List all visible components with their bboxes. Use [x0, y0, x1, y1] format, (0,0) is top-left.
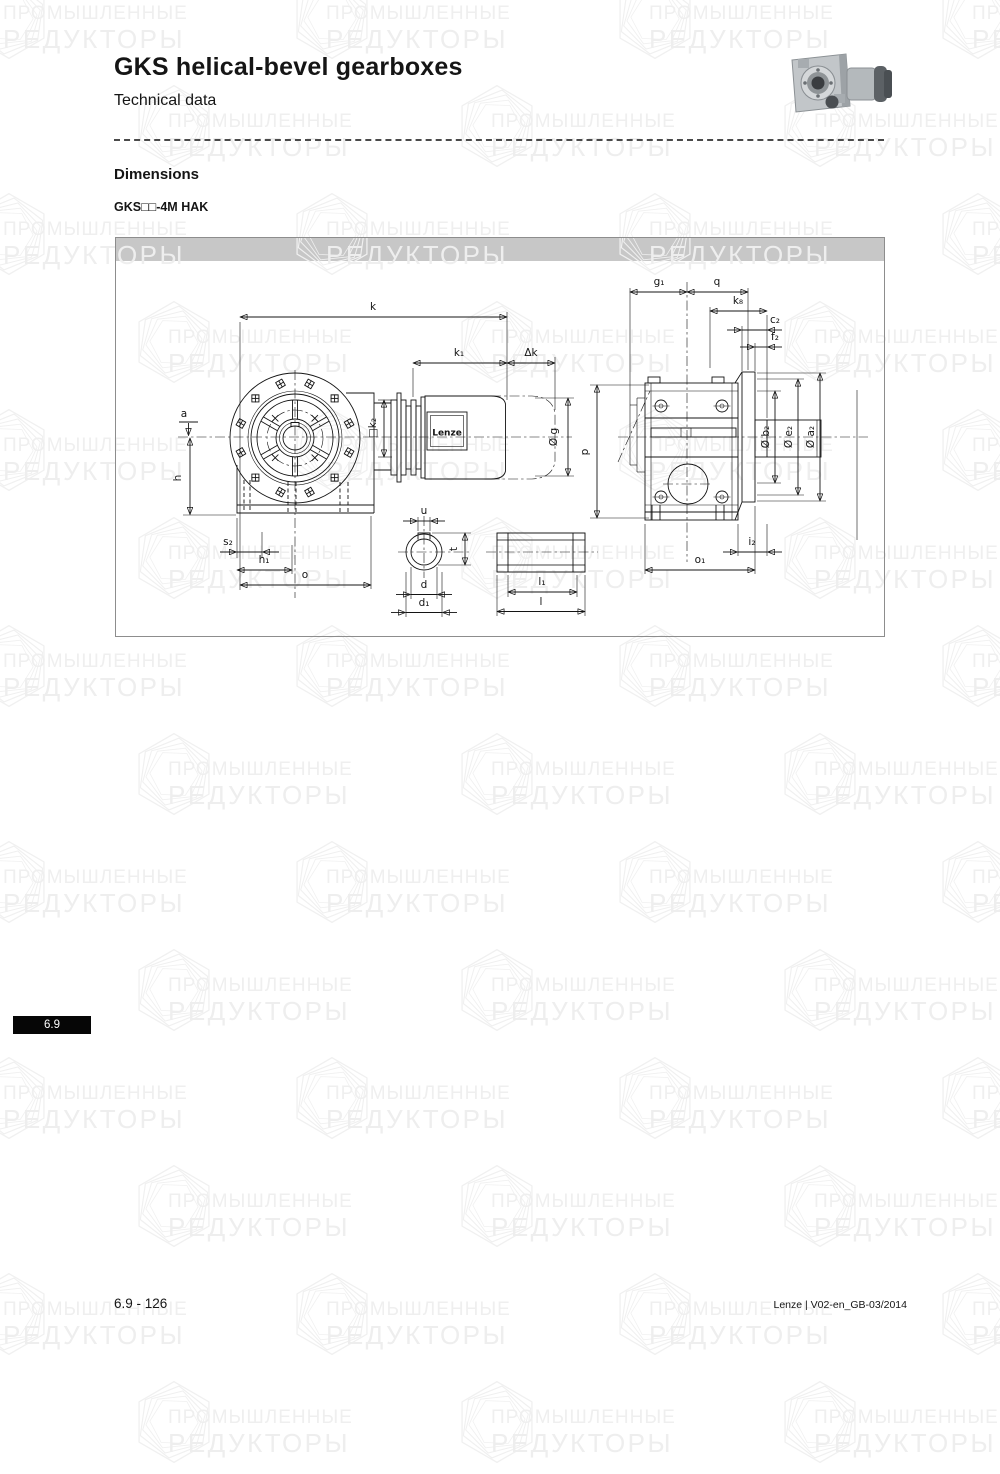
- dim-label-s2: s₂: [223, 536, 233, 548]
- watermark-line1: ПРОМЫШЛЕННЫЕ: [972, 652, 1000, 673]
- watermark-line2: РЕДУКТОРЫ: [3, 1105, 188, 1133]
- watermark: ПРОМЫШЛЕННЫЕРЕДУКТОРЫ: [0, 1266, 215, 1366]
- section-heading: Dimensions: [114, 166, 199, 183]
- watermark: ПРОМЫШЛЕННЫЕРЕДУКТОРЫ: [611, 834, 861, 934]
- watermark-line2: РЕДУКТОРЫ: [814, 997, 999, 1025]
- watermark: ПРОМЫШЛЕННЫЕРЕДУКТОРЫ: [934, 0, 1000, 70]
- watermark-line2: РЕДУКТОРЫ: [326, 673, 511, 701]
- watermark-line2: РЕДУКТОРЫ: [814, 133, 999, 161]
- watermark-line2: РЕДУКТОРЫ: [491, 1213, 676, 1241]
- watermark-line1: ПРОМЫШЛЕННЫЕ: [649, 1084, 834, 1105]
- watermark: ПРОМЫШЛЕННЫЕРЕДУКТОРЫ: [776, 1374, 1000, 1474]
- watermark-line2: РЕДУКТОРЫ: [814, 1213, 999, 1241]
- watermark: ПРОМЫШЛЕННЫЕРЕДУКТОРЫ: [453, 1158, 703, 1258]
- footer-page-number: 6.9 - 126: [114, 1296, 167, 1311]
- watermark-line2: РЕДУКТОРЫ: [3, 673, 188, 701]
- watermark-line2: РЕДУКТОРЫ: [3, 1321, 188, 1349]
- catalog-page: { "header": { "title": "GKS helical-beve…: [0, 0, 1000, 1395]
- watermark: ПРОМЫШЛЕННЫЕРЕДУКТОРЫ: [130, 726, 380, 826]
- watermark-line2: РЕДУКТОРЫ: [649, 1321, 834, 1349]
- watermark-line2: РЕДУКТОРЫ: [972, 673, 1000, 701]
- rear-bolts: [653, 400, 731, 503]
- watermark-line1: ПРОМЫШЛЕННЫЕ: [491, 1192, 676, 1213]
- watermark: ПРОМЫШЛЕННЫЕРЕДУКТОРЫ: [130, 942, 380, 1042]
- watermark: ПРОМЫШЛЕННЫЕРЕДУКТОРЫ: [453, 78, 703, 178]
- watermark-line2: РЕДУКТОРЫ: [491, 997, 676, 1025]
- dashed-divider: [114, 139, 884, 141]
- watermark-line1: ПРОМЫШЛЕННЫЕ: [972, 1084, 1000, 1105]
- watermark: ПРОМЫШЛЕННЫЕРЕДУКТОРЫ: [934, 402, 1000, 502]
- technical-drawing: Lenze: [115, 237, 885, 637]
- watermark: ПРОМЫШЛЕННЫЕРЕДУКТОРЫ: [934, 1266, 1000, 1366]
- watermark-line2: РЕДУКТОРЫ: [972, 25, 1000, 53]
- dim-label-c2: c₂: [770, 314, 780, 326]
- dim-label-k8: k₈: [733, 295, 743, 307]
- page-subtitle: Technical data: [114, 92, 216, 110]
- dim-label-o1: o₁: [695, 554, 706, 566]
- watermark-line1: ПРОМЫШЛЕННЫЕ: [326, 4, 511, 25]
- chapter-tab: 6.9: [13, 1016, 91, 1034]
- watermark: ПРОМЫШЛЕННЫЕРЕДУКТОРЫ: [288, 1050, 538, 1150]
- page-title: GKS helical-bevel gearboxes: [114, 53, 463, 82]
- watermark: ПРОМЫШЛЕННЫЕРЕДУКТОРЫ: [130, 1158, 380, 1258]
- watermark-line2: РЕДУКТОРЫ: [168, 1213, 353, 1241]
- watermark-line1: ПРОМЫШЛЕННЫЕ: [326, 652, 511, 673]
- watermark-line1: ПРОМЫШЛЕННЫЕ: [814, 976, 999, 997]
- watermark-line2: РЕДУКТОРЫ: [168, 781, 353, 809]
- watermark-line1: ПРОМЫШЛЕННЫЕ: [168, 112, 353, 133]
- watermark-line1: ПРОМЫШЛЕННЫЕ: [972, 1300, 1000, 1321]
- watermark-line2: РЕДУКТОРЫ: [649, 1105, 834, 1133]
- footer-doc-ref: Lenze | V02-en_GB-03/2014: [774, 1299, 908, 1311]
- front-view: [178, 370, 572, 598]
- watermark-line1: ПРОМЫШЛЕННЫЕ: [491, 976, 676, 997]
- watermark-line1: ПРОМЫШЛЕННЫЕ: [814, 760, 999, 781]
- side-view-motor: Lenze: [391, 393, 555, 482]
- watermark-line1: ПРОМЫШЛЕННЫЕ: [972, 436, 1000, 457]
- watermark-line1: ПРОМЫШЛЕННЫЕ: [491, 760, 676, 781]
- dim-label-k1: k₁: [454, 347, 464, 359]
- watermark: ПРОМЫШЛЕННЫЕРЕДУКТОРЫ: [0, 834, 215, 934]
- watermark: ПРОМЫШЛЕННЫЕРЕДУКТОРЫ: [0, 1050, 215, 1150]
- watermark: ПРОМЫШЛЕННЫЕРЕДУКТОРЫ: [934, 1050, 1000, 1150]
- watermark: ПРОМЫШЛЕННЫЕРЕДУКТОРЫ: [453, 1374, 703, 1474]
- dim-label-e2: Ø e₂: [783, 426, 795, 448]
- watermark: ПРОМЫШЛЕННЫЕРЕДУКТОРЫ: [453, 942, 703, 1042]
- dim-label-o: o: [302, 569, 308, 581]
- dim-label-u: u: [421, 505, 428, 517]
- dim-label-q: q: [714, 276, 721, 288]
- watermark-line2: РЕДУКТОРЫ: [326, 25, 511, 53]
- watermark-line2: РЕДУКТОРЫ: [972, 1105, 1000, 1133]
- watermark: ПРОМЫШЛЕННЫЕРЕДУКТОРЫ: [611, 1050, 861, 1150]
- watermark-line2: РЕДУКТОРЫ: [168, 133, 353, 161]
- watermark-line1: ПРОМЫШЛЕННЫЕ: [814, 1192, 999, 1213]
- watermark-line2: РЕДУКТОРЫ: [168, 1429, 353, 1457]
- watermark-line1: ПРОМЫШЛЕННЫЕ: [972, 220, 1000, 241]
- watermark-line2: РЕДУКТОРЫ: [972, 1321, 1000, 1349]
- motor-brand-logo: Lenze: [432, 429, 462, 439]
- watermark: ПРОМЫШЛЕННЫЕРЕДУКТОРЫ: [934, 618, 1000, 718]
- watermark-line1: ПРОМЫШЛЕННЫЕ: [972, 868, 1000, 889]
- watermark-line1: ПРОМЫШЛЕННЫЕ: [168, 1408, 353, 1429]
- watermark-line2: РЕДУКТОРЫ: [814, 781, 999, 809]
- watermark-line1: ПРОМЫШЛЕННЫЕ: [814, 1408, 999, 1429]
- dim-label-d: d: [421, 579, 428, 591]
- watermark: ПРОМЫШЛЕННЫЕРЕДУКТОРЫ: [776, 942, 1000, 1042]
- rear-view: [618, 282, 868, 562]
- dim-label-l1: l₁: [538, 576, 545, 588]
- watermark-line1: ПРОМЫШЛЕННЫЕ: [168, 760, 353, 781]
- gearbox-product-image: [783, 46, 895, 118]
- dim-label-k: k: [370, 301, 377, 313]
- dim-label-i2: i₂: [748, 536, 755, 548]
- dim-label-h1: h₁: [259, 554, 270, 566]
- watermark-line1: ПРОМЫШЛЕННЫЕ: [168, 1192, 353, 1213]
- watermark: ПРОМЫШЛЕННЫЕРЕДУКТОРЫ: [934, 834, 1000, 934]
- dim-label-k2: □k₂: [367, 418, 379, 438]
- watermark-line1: ПРОМЫШЛЕННЫЕ: [326, 868, 511, 889]
- dim-label-dk: Δk: [524, 347, 538, 359]
- watermark-line2: РЕДУКТОРЫ: [972, 241, 1000, 269]
- dim-label-a: a: [181, 408, 187, 420]
- dim-label-g: Ø g: [548, 428, 560, 446]
- watermark-line1: ПРОМЫШЛЕННЫЕ: [649, 868, 834, 889]
- watermark-line2: РЕДУКТОРЫ: [3, 889, 188, 917]
- watermark-line2: РЕДУКТОРЫ: [3, 25, 188, 53]
- watermark-line1: ПРОМЫШЛЕННЫЕ: [168, 976, 353, 997]
- dim-label-l: l: [540, 596, 543, 608]
- watermark-line1: ПРОМЫШЛЕННЫЕ: [491, 1408, 676, 1429]
- model-label: GKS□□-4M HAK: [114, 200, 208, 214]
- watermark: ПРОМЫШЛЕННЫЕРЕДУКТОРЫ: [288, 1266, 538, 1366]
- dim-label-f2: f₂: [771, 331, 779, 343]
- watermark-line1: ПРОМЫШЛЕННЫЕ: [972, 4, 1000, 25]
- watermark-line2: РЕДУКТОРЫ: [491, 1429, 676, 1457]
- watermark: ПРОМЫШЛЕННЫЕРЕДУКТОРЫ: [776, 726, 1000, 826]
- watermark-line2: РЕДУКТОРЫ: [814, 1429, 999, 1457]
- watermark: ПРОМЫШЛЕННЫЕРЕДУКТОРЫ: [130, 1374, 380, 1474]
- watermark: ПРОМЫШЛЕННЫЕРЕДУКТОРЫ: [776, 1158, 1000, 1258]
- sleeve-detail: [486, 533, 598, 572]
- watermark-line1: ПРОМЫШЛЕННЫЕ: [491, 112, 676, 133]
- watermark-line2: РЕДУКТОРЫ: [972, 889, 1000, 917]
- watermark-line1: ПРОМЫШЛЕННЫЕ: [3, 4, 188, 25]
- dim-label-a2: Ø a₂: [805, 426, 817, 448]
- dim-label-t: t: [448, 547, 460, 551]
- dim-label-d1: d₁: [419, 597, 430, 609]
- dim-label-b2: Ø b₂: [760, 426, 772, 448]
- watermark-line2: РЕДУКТОРЫ: [491, 781, 676, 809]
- watermark-line2: РЕДУКТОРЫ: [649, 673, 834, 701]
- watermark-line2: РЕДУКТОРЫ: [649, 889, 834, 917]
- watermark-line2: РЕДУКТОРЫ: [326, 1321, 511, 1349]
- watermark-line2: РЕДУКТОРЫ: [326, 1105, 511, 1133]
- watermark: ПРОМЫШЛЕННЫЕРЕДУКТОРЫ: [611, 1266, 861, 1366]
- dim-label-g1: g₁: [654, 276, 665, 288]
- dimensions: k k₁ Δk a h s₂ h₁ o □k₂ Ø g: [172, 276, 826, 617]
- watermark-line2: РЕДУКТОРЫ: [491, 133, 676, 161]
- watermark-line1: ПРОМЫШЛЕННЫЕ: [326, 1084, 511, 1105]
- watermark: ПРОМЫШЛЕННЫЕРЕДУКТОРЫ: [934, 186, 1000, 286]
- watermark-line1: ПРОМЫШЛЕННЫЕ: [3, 1084, 188, 1105]
- watermark-line1: ПРОМЫШЛЕННЫЕ: [326, 1300, 511, 1321]
- watermark-line1: ПРОМЫШЛЕННЫЕ: [649, 652, 834, 673]
- watermark-line1: ПРОМЫШЛЕННЫЕ: [649, 4, 834, 25]
- watermark-line2: РЕДУКТОРЫ: [168, 997, 353, 1025]
- dim-label-p: p: [579, 448, 591, 455]
- dim-label-h: h: [172, 475, 184, 482]
- watermark-line1: ПРОМЫШЛЕННЫЕ: [3, 652, 188, 673]
- watermark: ПРОМЫШЛЕННЫЕРЕДУКТОРЫ: [453, 726, 703, 826]
- watermark-line2: РЕДУКТОРЫ: [972, 457, 1000, 485]
- watermark: ПРОМЫШЛЕННЫЕРЕДУКТОРЫ: [288, 834, 538, 934]
- watermark-line2: РЕДУКТОРЫ: [326, 889, 511, 917]
- watermark-line1: ПРОМЫШЛЕННЫЕ: [3, 868, 188, 889]
